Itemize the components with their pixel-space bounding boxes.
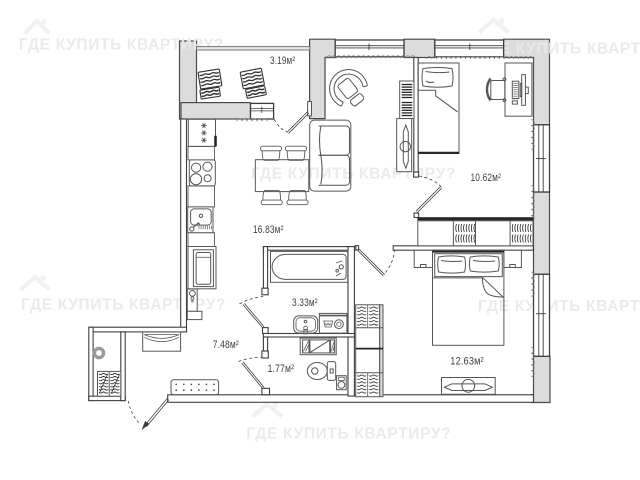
svg-text:1.77м²: 1.77м² [268,363,295,375]
svg-text:12.63м²: 12.63м² [450,356,484,368]
svg-text:7.48м²: 7.48м² [213,339,239,351]
svg-text:ГДЕ КУПИТЬ КВАРТИРУ?: ГДЕ КУПИТЬ КВАРТИРУ? [19,37,224,54]
svg-text:ГДЕ КУПИТЬ КВАРТИРУ?: ГДЕ КУПИТЬ КВАРТИРУ? [246,426,451,443]
svg-text:16.83м²: 16.83м² [253,224,284,236]
svg-text:ГДЕ КУПИТЬ КВАРТИРУ?: ГДЕ КУПИТЬ КВАРТИРУ? [251,165,456,182]
svg-text:10.62м²: 10.62м² [471,172,502,184]
svg-text:3.19м²: 3.19м² [270,55,295,67]
svg-text:3.33м²: 3.33м² [292,297,318,309]
